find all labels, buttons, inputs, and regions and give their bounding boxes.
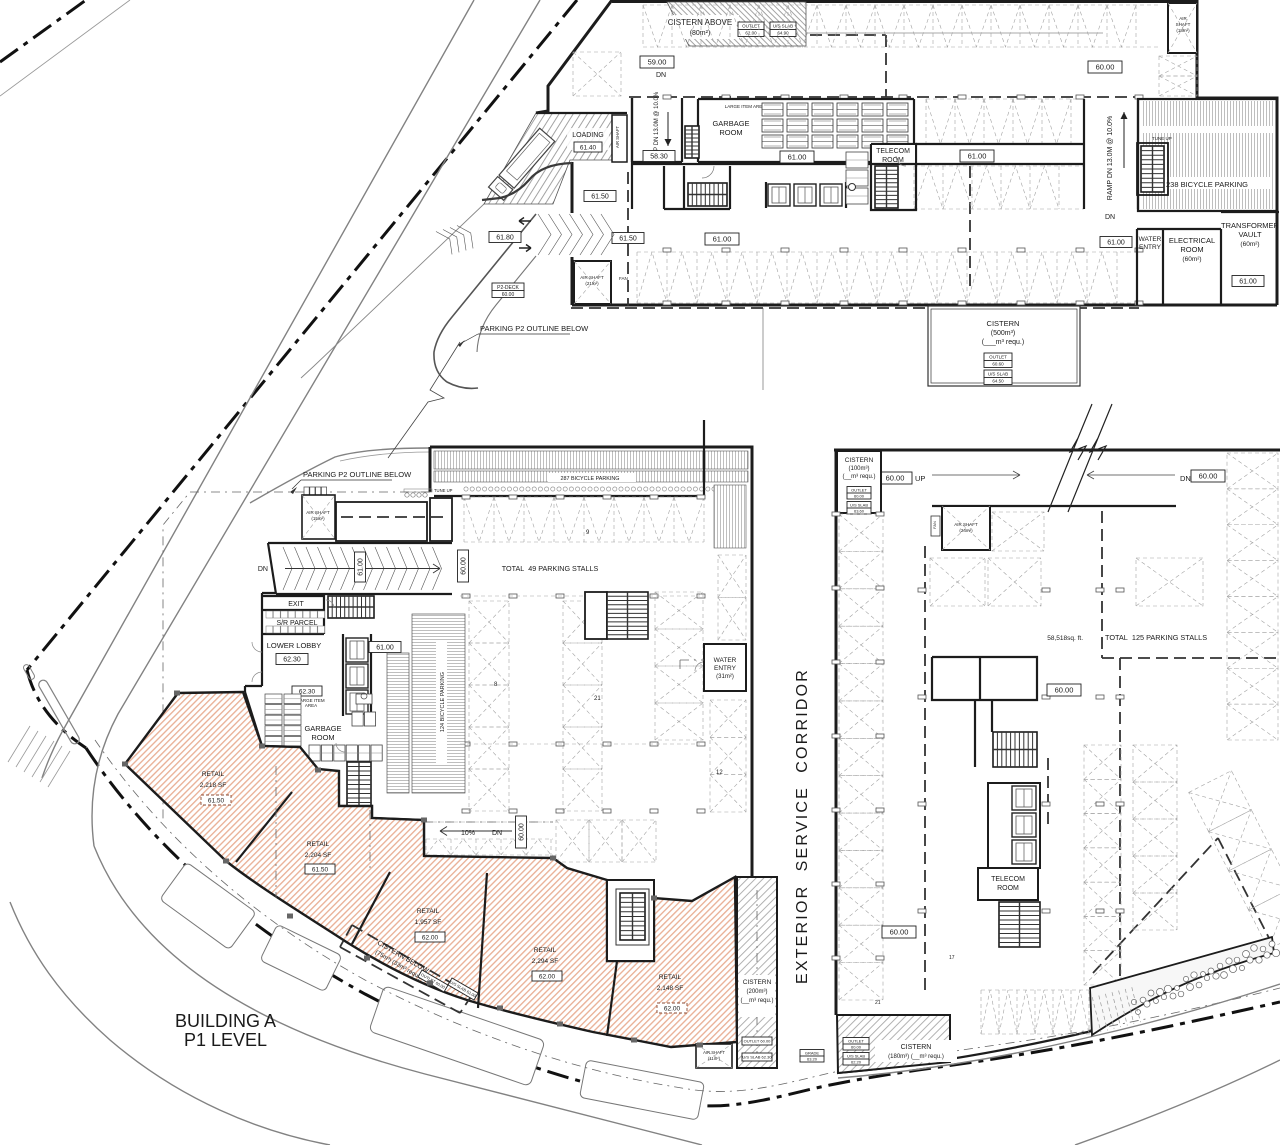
svg-text:TOTAL 49 PARKING STALLS: TOTAL 49 PARKING STALLS (502, 564, 599, 573)
svg-text:DN: DN (1180, 474, 1191, 483)
svg-text:ROOM: ROOM (1180, 245, 1203, 254)
svg-text:58.30: 58.30 (650, 154, 668, 161)
svg-text:(18m²): (18m²) (1176, 28, 1190, 33)
svg-text:LARGE ITEM AREA: LARGE ITEM AREA (725, 104, 766, 109)
svg-text:63.60: 63.60 (854, 508, 865, 513)
svg-text:OUTLET 60.00: OUTLET 60.00 (744, 1038, 772, 1043)
svg-text:61.00: 61.00 (788, 153, 807, 162)
svg-text:TELECOM: TELECOM (876, 148, 910, 155)
svg-text:LOWER LOBBY: LOWER LOBBY (267, 641, 322, 650)
svg-text:WATER: WATER (1139, 236, 1162, 243)
svg-text:2,294 SF: 2,294 SF (532, 958, 558, 965)
svg-text:PARKING P2 OUTLINE BELOW: PARKING P2 OUTLINE BELOW (303, 470, 412, 479)
svg-text:60.00: 60.00 (461, 557, 468, 575)
svg-text:(500m³): (500m³) (991, 330, 1016, 337)
svg-text:2,218 SF: 2,218 SF (200, 782, 226, 789)
svg-text:AIR SHAFT: AIR SHAFT (580, 275, 604, 280)
svg-text:SHAFT: SHAFT (1176, 22, 1191, 27)
svg-text:TUNE UP: TUNE UP (1152, 136, 1172, 141)
svg-text:59.00: 59.00 (648, 58, 667, 67)
svg-text:(21m²): (21m²) (585, 281, 599, 286)
svg-text:60.00: 60.00 (1096, 63, 1115, 72)
svg-text:P1 LEVEL: P1 LEVEL (184, 1030, 267, 1050)
svg-text:ELECTRICAL: ELECTRICAL (1169, 236, 1215, 245)
svg-text:DN: DN (258, 566, 268, 573)
svg-text:OUTLET: OUTLET (851, 487, 867, 492)
svg-text:EXTERIOR SERVICE CORRIDOR: EXTERIOR SERVICE CORRIDOR (794, 668, 811, 984)
svg-text:64.90: 64.90 (777, 31, 789, 36)
svg-text:AIR SHAFT: AIR SHAFT (954, 522, 978, 527)
svg-text:RAMP DN 13.0M @ 10.0%: RAMP DN 13.0M @ 10.0% (1107, 116, 1114, 200)
svg-text:1,957 SF: 1,957 SF (415, 919, 441, 926)
svg-text:62.20: 62.20 (851, 1059, 862, 1064)
svg-text:60.00: 60.00 (502, 292, 515, 298)
svg-text:OUTLET: OUTLET (848, 1038, 864, 1043)
svg-text:FAN: FAN (932, 521, 937, 529)
svg-text:AREA: AREA (305, 703, 317, 708)
svg-text:LOADING: LOADING (572, 132, 604, 139)
svg-text:ENTRY: ENTRY (1139, 244, 1162, 251)
svg-text:58,518sq. ft.: 58,518sq. ft. (1047, 635, 1083, 642)
svg-text:2,148 SF: 2,148 SF (657, 985, 683, 992)
svg-text:P2-DECK: P2-DECK (497, 285, 519, 291)
svg-text:61.50: 61.50 (208, 797, 225, 804)
svg-text:(__m³ requ.): (__m³ requ.) (740, 998, 773, 1004)
svg-text:61.00: 61.00 (376, 645, 394, 652)
svg-text:10%: 10% (461, 830, 475, 837)
svg-text:(200m³): (200m³) (746, 989, 767, 995)
svg-text:AIR: AIR (1179, 16, 1187, 21)
svg-text:AIR SHAFT: AIR SHAFT (703, 1050, 725, 1055)
svg-text:RETAIL: RETAIL (659, 974, 682, 981)
svg-text:U/S SLAB: U/S SLAB (988, 372, 1008, 377)
svg-text:61.50: 61.50 (312, 866, 329, 873)
svg-text:TUNE UP: TUNE UP (434, 488, 453, 493)
svg-text:OUTLET: OUTLET (989, 355, 1007, 360)
svg-text:FAN: FAN (619, 276, 628, 281)
svg-text:61.40: 61.40 (580, 144, 597, 151)
svg-text:61.00: 61.00 (358, 558, 365, 576)
svg-text:64.50: 64.50 (992, 379, 1004, 384)
svg-text:CISTERN: CISTERN (987, 319, 1020, 328)
svg-text:60.00: 60.00 (890, 928, 909, 937)
svg-text:ROOM: ROOM (311, 733, 334, 742)
svg-text:17: 17 (949, 955, 955, 961)
svg-text:UP: UP (915, 474, 925, 483)
svg-text:U/S SLAB: U/S SLAB (847, 1053, 865, 1058)
svg-text:62.30: 62.30 (283, 657, 301, 664)
svg-text:ROOM: ROOM (997, 885, 1019, 892)
svg-text:U/S SLAB: U/S SLAB (773, 24, 793, 29)
svg-text:61.50: 61.50 (619, 236, 637, 243)
svg-text:(24m²): (24m²) (959, 528, 973, 533)
svg-text:12: 12 (716, 770, 723, 776)
svg-text:(180m³) (__m³ requ.): (180m³) (__m³ requ.) (888, 1054, 944, 1060)
svg-text:(60m²): (60m²) (1240, 241, 1259, 248)
svg-text:ENTRY: ENTRY (714, 665, 737, 672)
svg-text:60.00: 60.00 (519, 823, 526, 841)
svg-text:61.50: 61.50 (591, 194, 609, 201)
svg-text:60.00: 60.00 (851, 1044, 862, 1049)
svg-text:CISTERN: CISTERN (901, 1044, 932, 1051)
svg-text:TRANSFORMER: TRANSFORMER (1221, 221, 1280, 230)
svg-text:AIR SHAFT: AIR SHAFT (306, 510, 330, 515)
svg-text:RETAIL: RETAIL (202, 771, 225, 778)
svg-text:CISTERN: CISTERN (743, 979, 772, 986)
svg-text:21: 21 (875, 1000, 881, 1006)
svg-text:60.00: 60.00 (1199, 472, 1218, 481)
svg-text:60.00: 60.00 (886, 474, 905, 483)
svg-text:21: 21 (594, 696, 601, 702)
svg-text:TOTAL 125 PARKING STALLS: TOTAL 125 PARKING STALLS (1105, 633, 1207, 642)
svg-text:U/S SLAB: U/S SLAB (850, 502, 868, 507)
svg-text:(80m²): (80m²) (690, 30, 711, 37)
svg-text:(31m²): (31m²) (716, 674, 734, 680)
svg-text:GRADE: GRADE (805, 1050, 820, 1055)
svg-text:TELECOM: TELECOM (991, 876, 1025, 883)
svg-text:60.60: 60.60 (992, 362, 1004, 367)
svg-text:(100m³): (100m³) (848, 466, 869, 472)
svg-text:287 BICYCLE PARKING: 287 BICYCLE PARKING (561, 476, 620, 482)
svg-text:WATER: WATER (714, 657, 737, 664)
svg-text:GARBAGE: GARBAGE (712, 119, 749, 128)
svg-text:60.00: 60.00 (854, 493, 865, 498)
svg-text:61.80: 61.80 (496, 235, 514, 242)
svg-text:124 BICYCLE PARKING: 124 BICYCLE PARKING (440, 672, 446, 732)
svg-text:(11m²): (11m²) (708, 1056, 721, 1061)
svg-text:DN: DN (656, 72, 666, 79)
svg-text:PARKING P2 OUTLINE BELOW: PARKING P2 OUTLINE BELOW (480, 324, 589, 333)
svg-text:2,204 SF: 2,204 SF (305, 852, 331, 859)
svg-text:62.30: 62.30 (299, 688, 316, 695)
svg-text:61.00: 61.00 (713, 235, 732, 244)
svg-text:GARBAGE: GARBAGE (304, 724, 341, 733)
svg-text:(15m²): (15m²) (311, 516, 325, 521)
svg-text:(__m³ requ.): (__m³ requ.) (842, 474, 875, 480)
svg-text:DN: DN (1105, 214, 1115, 221)
svg-text:62.00: 62.00 (539, 973, 556, 980)
svg-text:VAULT: VAULT (1238, 230, 1261, 239)
svg-text:CISTERN: CISTERN (845, 457, 874, 464)
svg-text:RETAIL: RETAIL (534, 947, 557, 954)
svg-text:U/S SLAB 62.30: U/S SLAB 62.30 (742, 1054, 772, 1059)
svg-text:62.00: 62.00 (664, 1005, 681, 1012)
svg-text:61.00: 61.00 (968, 152, 987, 161)
svg-text:BUILDING A: BUILDING A (175, 1011, 276, 1031)
svg-text:RETAIL: RETAIL (307, 841, 330, 848)
svg-text:RETAIL: RETAIL (417, 908, 440, 915)
svg-text:60.00: 60.00 (1055, 686, 1074, 695)
svg-text:238 BICYCLE PARKING: 238 BICYCLE PARKING (1166, 180, 1248, 189)
svg-text:62.00: 62.00 (422, 934, 439, 941)
svg-text:EXIT: EXIT (288, 601, 304, 608)
svg-text:(60m²): (60m²) (1182, 256, 1201, 263)
svg-text:61.00: 61.00 (1107, 240, 1125, 247)
svg-text:ROOM: ROOM (719, 128, 742, 137)
svg-text:(___m³ requ.): (___m³ requ.) (982, 339, 1024, 346)
svg-text:DN: DN (492, 830, 502, 837)
svg-text:AIR SHAFT: AIR SHAFT (615, 126, 620, 148)
svg-text:63.20: 63.20 (807, 1056, 818, 1061)
svg-text:61.00: 61.00 (1239, 279, 1257, 286)
svg-text:62.00: 62.00 (745, 31, 757, 36)
